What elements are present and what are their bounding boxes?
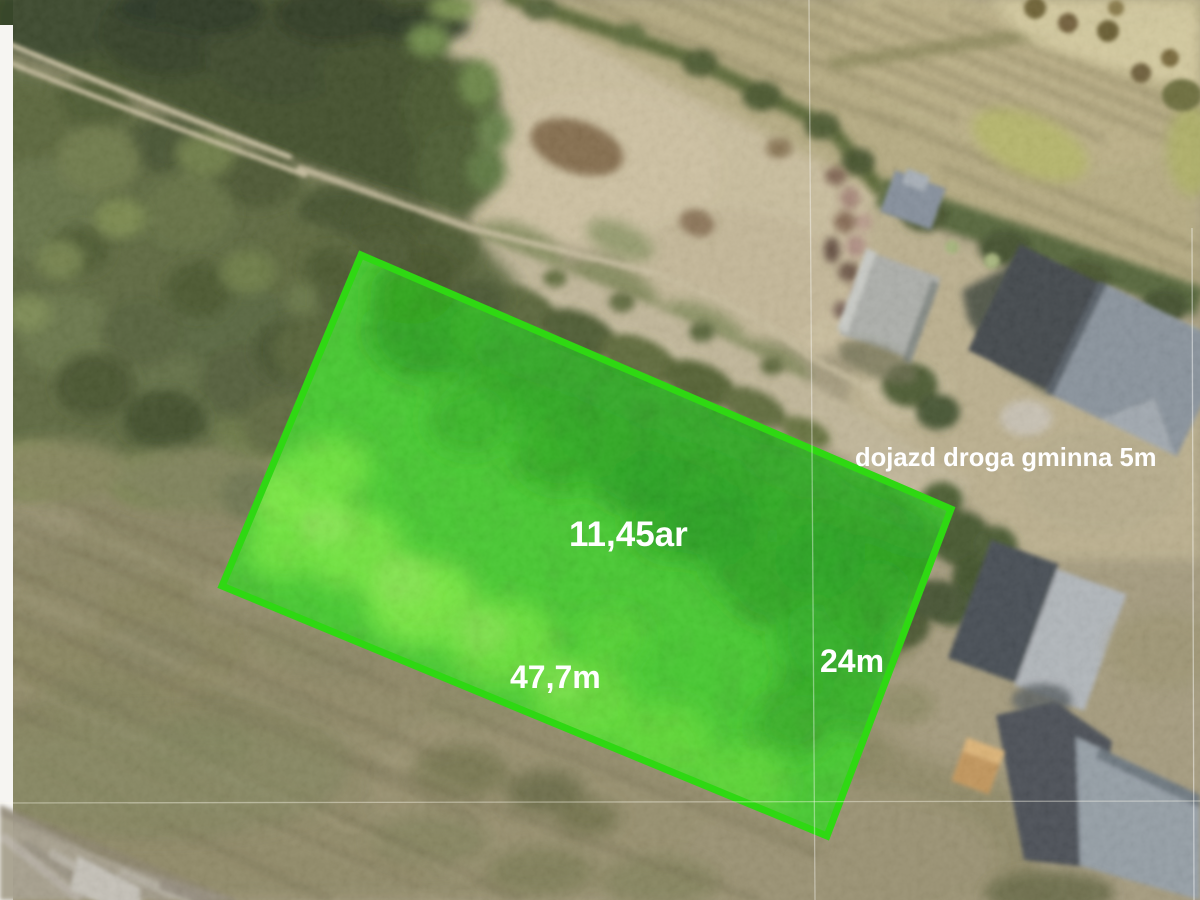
svg-text:47,7m: 47,7m (510, 659, 601, 695)
svg-text:dojazd droga gminna 5m: dojazd droga gminna 5m (855, 444, 1156, 472)
svg-text:11,45ar: 11,45ar (569, 515, 688, 554)
svg-text:24m: 24m (820, 643, 884, 679)
